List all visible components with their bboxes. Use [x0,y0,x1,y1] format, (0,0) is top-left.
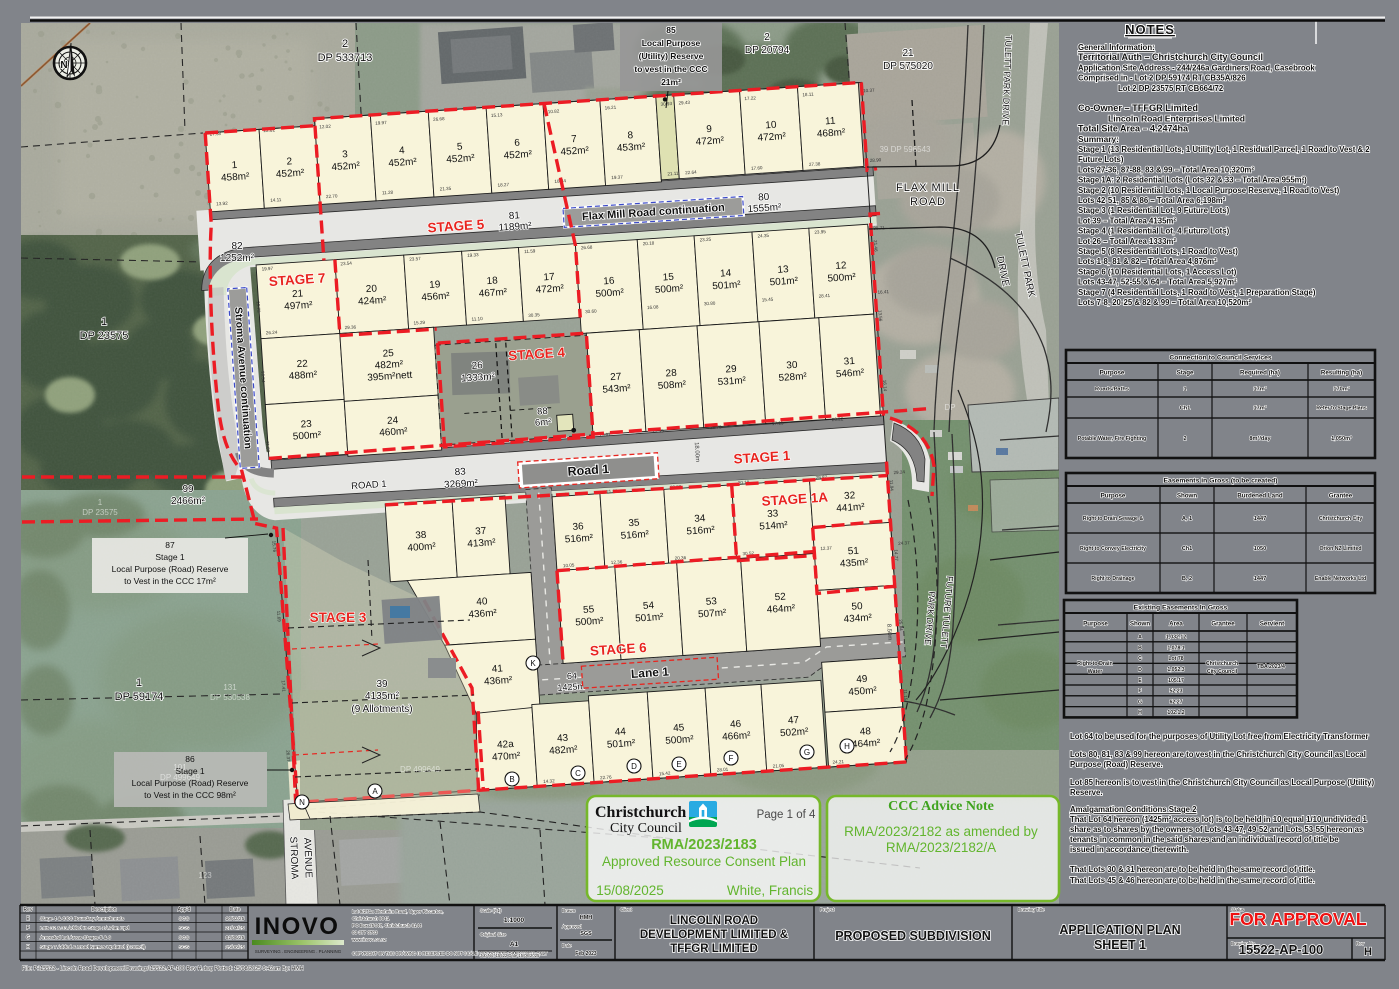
svg-text:22.64: 22.64 [685,169,697,175]
svg-text:81: 81 [508,210,520,222]
svg-text:8m³/day: 8m³/day [1249,435,1271,442]
svg-text:507m²: 507m² [698,607,728,620]
svg-text:Summary:: Summary: [1078,134,1119,144]
svg-text:10.05: 10.05 [563,562,575,568]
svg-text:H: H [844,742,850,751]
svg-text:STAGE 3: STAGE 3 [310,610,367,625]
svg-text:Lots 1-8, 81 & 82 – Total Area: Lots 1-8, 81 & 82 – Total Area 4,876m² [1078,257,1217,266]
svg-text:86: 86 [185,754,195,764]
svg-text:Feb 2023: Feb 2023 [575,951,597,957]
svg-text:Local Purpose: Local Purpose [642,38,701,48]
svg-text:22.76: 22.76 [600,774,612,780]
svg-text:www.inovo.co.nz: www.inovo.co.nz [352,937,387,942]
svg-text:Right to Drain Sewage &: Right to Drain Sewage & [1083,516,1143,522]
svg-text:434m²: 434m² [843,612,873,625]
svg-text:Total Site Area – 4.2474ha: Total Site Area – 4.2474ha [1078,124,1189,134]
svg-text:49: 49 [856,674,868,686]
svg-text:Ch1: Ch1 [1180,406,1191,412]
svg-text:11.10: 11.10 [471,316,483,322]
svg-text:AVENUE: AVENUE [301,838,313,879]
svg-text:to Vest in the CCC 17m²: to Vest in the CCC 17m² [124,576,216,586]
svg-text:29.43: 29.43 [678,100,690,106]
svg-text:441m²: 441m² [836,502,866,515]
svg-text:514m²: 514m² [759,520,789,533]
svg-text:53: 53 [705,596,717,608]
svg-text:Date: Date [230,907,241,913]
svg-text:531m²: 531m² [717,375,747,388]
svg-text:17.41: 17.41 [281,680,287,692]
svg-text:Enable Networks Ltd: Enable Networks Ltd [1315,576,1366,582]
svg-text:1: 1 [101,316,107,328]
svg-text:Scale (A1): Scale (A1) [480,908,502,913]
svg-text:21.35: 21.35 [440,186,452,192]
svg-text:Stage 1: Stage 1 [155,552,185,562]
svg-text:80: 80 [758,192,770,204]
svg-text:452m²: 452m² [331,160,361,173]
svg-text:24.37: 24.37 [898,540,910,546]
svg-text:RMA/2023/2182/A: RMA/2023/2182/A [886,840,996,855]
svg-text:450m²: 450m² [848,685,878,698]
svg-text:13.92: 13.92 [216,201,228,207]
svg-text:543m²: 543m² [602,383,632,396]
svg-text:23.25: 23.25 [699,237,711,243]
svg-text:2: 2 [1183,436,1186,442]
svg-text:PO Box 25447, Christchurch 814: PO Box 25447, Christchurch 8144 [352,923,422,928]
svg-text:11.28: 11.28 [382,190,394,196]
svg-text:54: 54 [643,600,655,612]
svg-text:City Council: City Council [610,821,682,836]
svg-text:17m³: 17m³ [1253,386,1266,393]
svg-text:131: 131 [223,683,237,692]
svg-text:Refer to Stage Plans: Refer to Stage Plans [1316,406,1367,412]
svg-text:Lots 42-51, 85 & 86 – Total Ar: Lots 42-51, 85 & 86 – Total Area 6,198m² [1078,196,1226,205]
svg-text:15: 15 [662,272,674,284]
svg-text:452m²: 452m² [276,167,306,180]
svg-text:H: H [1138,710,1142,716]
svg-text:17.60: 17.60 [751,165,763,171]
svg-text:23.95: 23.95 [814,229,826,235]
svg-text:Lots 43-47, 52-55 & 64 – Total: Lots 43-47, 52-55 & 64 – Total Area 5,92… [1078,278,1237,287]
svg-text:Roads/Paths: Roads/Paths [1095,387,1129,393]
svg-text:Territorial Auth – Christchurc: Territorial Auth – Christchurch City Cou… [1078,52,1263,62]
svg-text:2: 2 [764,32,770,43]
svg-text:INOVO: INOVO [255,913,340,940]
svg-text:H: H [26,945,30,951]
svg-text:16.21: 16.21 [605,105,617,111]
svg-text:12: 12 [835,260,847,272]
svg-text:501m²: 501m² [769,276,799,289]
svg-text:Co-Owner – TFFGR Limited: Co-Owner – TFFGR Limited [1078,103,1198,113]
svg-text:App'd: App'd [178,907,191,913]
svg-text:SGS: SGS [179,926,189,932]
svg-text:19.73: 19.73 [255,301,261,313]
svg-text:1,052.3: 1,052.3 [1167,667,1184,673]
svg-text:21.05: 21.05 [773,763,785,769]
svg-text:RMA/2023/2182 as amended by: RMA/2023/2182 as amended by [844,824,1038,839]
svg-text:Rev: Rev [24,907,33,913]
svg-text:17.22: 17.22 [744,95,756,101]
svg-text:F: F [26,926,29,932]
svg-text:31: 31 [843,356,855,368]
svg-text:City Council: City Council [1207,669,1238,675]
svg-text:Stage 1 (13 Residential Lots,: Stage 1 (13 Residential Lots, 1 Utility … [1078,145,1370,154]
svg-text:1555m²: 1555m² [747,202,782,215]
svg-text:Existing Easements In Gross: Existing Easements In Gross [1134,605,1228,612]
svg-text:36: 36 [572,521,584,533]
svg-text:435m²: 435m² [840,557,870,570]
svg-text:SGS: SGS [179,935,189,941]
svg-text:Required (ha): Required (ha) [1240,370,1280,377]
svg-text:52: 52 [774,592,786,604]
svg-text:ROAD: ROAD [910,196,946,208]
svg-text:10: 10 [765,120,777,132]
svg-text:15.13: 15.13 [491,112,503,118]
svg-text:500m²: 500m² [827,272,857,285]
svg-text:13: 13 [777,264,789,276]
svg-text:HMH: HMH [580,915,593,921]
svg-text:1447: 1447 [1254,576,1266,582]
svg-text:47: 47 [788,715,800,727]
svg-text:Lots 7-8, 20-25 & 82 & 99 – To: Lots 7-8, 20-25 & 82 & 99 – Total Area 1… [1078,298,1251,307]
svg-text:500m²: 500m² [595,287,625,300]
svg-text:Right to Drainage: Right to Drainage [1091,576,1134,582]
svg-text:Christchurch: Christchurch [1206,661,1238,667]
svg-text:20: 20 [366,283,378,295]
svg-text:Stage 4 & CCC Boundary Amendme: Stage 4 & CCC Boundary Amendments [40,916,125,922]
svg-text:37: 37 [475,526,487,538]
svg-text:55: 55 [583,604,595,616]
svg-text:File: P:\15522 - Lincoln Road: File: P:\15522 - Lincoln Road Developmen… [22,966,304,972]
svg-text:10.82: 10.82 [548,108,560,114]
svg-text:Water: Water [1088,669,1104,675]
svg-text:99: 99 [182,484,194,495]
svg-text:38: 38 [415,530,427,542]
svg-text:24: 24 [387,415,399,427]
svg-text:ROAD 1: ROAD 1 [351,479,387,492]
svg-text:11.07: 11.07 [265,441,271,453]
svg-text:436m²: 436m² [468,608,498,621]
svg-text:26: 26 [471,360,483,372]
svg-text:Orion NZ Limited: Orion NZ Limited [1319,546,1361,552]
svg-text:TBA 2023/4: TBA 2023/4 [1257,664,1285,670]
svg-text:501m²: 501m² [607,738,637,751]
svg-text:Stage 6 (10 Residential Lots,: Stage 6 (10 Residential Lots, 1 Access L… [1078,267,1237,276]
svg-text:That Lots 30 & 31 hereon are t: That Lots 30 & 31 hereon are to be held … [1070,865,1315,874]
svg-text:Lot 78: Lot 78 [1168,656,1183,662]
svg-text:464m²: 464m² [852,738,882,751]
svg-text:G: G [1138,699,1142,705]
svg-text:436m²: 436m² [484,675,514,688]
svg-text:28.01: 28.01 [717,767,729,773]
svg-text:1333m²: 1333m² [461,371,496,384]
svg-text:452m²: 452m² [388,157,418,170]
svg-text:123: 123 [198,871,212,880]
svg-text:14.32: 14.32 [543,778,555,784]
svg-text:19.97: 19.97 [261,266,273,272]
svg-text:466m²: 466m² [722,730,752,743]
svg-text:52.23: 52.23 [1170,689,1183,695]
svg-text:460m²: 460m² [379,426,409,439]
svg-text:85: 85 [666,25,676,35]
svg-text:14: 14 [720,268,732,280]
svg-text:D: D [1138,667,1142,673]
svg-text:1: 1 [1183,387,1186,393]
svg-text:516m²: 516m² [564,533,594,546]
svg-text:17: 17 [543,272,555,284]
svg-text:11.59: 11.59 [524,248,536,254]
svg-text:Lots 32 & 33 Added to Stage 1A: Lots 32 & 33 Added to Stage 1A Plan Upd [40,926,129,932]
svg-text:23.54: 23.54 [340,261,352,267]
svg-text:Client: Client [620,907,632,912]
svg-text:K: K [530,659,536,668]
svg-text:11: 11 [825,116,837,128]
svg-text:A: A [1138,635,1142,641]
svg-text:Shown: Shown [1177,493,1197,500]
svg-text:6m²: 6m² [535,417,552,429]
svg-text:Stage 7 Added & Road Names Upd: Stage 7 Added & Road Names Updated (Coun… [40,945,146,951]
svg-text:87: 87 [165,540,175,550]
svg-text:400m²: 400m² [407,541,437,554]
svg-text:Lot 2 DP 23575 RT CB664/72: Lot 2 DP 23575 RT CB664/72 [1118,84,1224,93]
svg-text:Drawn: Drawn [562,908,576,913]
svg-text:1189m²: 1189m² [498,221,532,234]
svg-text:SURVEYING . ENGINEERING . PLAN: SURVEYING . ENGINEERING . PLANNING [255,949,342,954]
svg-text:41: 41 [491,663,503,675]
svg-text:That Lots 45 & 46 hereon are t: That Lots 45 & 46 hereon are to be held … [1070,876,1315,885]
svg-text:Amended Lot Areas Stages 5 & 6: Amended Lot Areas Stages 5 & 6 [40,935,111,941]
svg-text:467m²: 467m² [478,287,508,300]
svg-text:468m²: 468m² [817,127,847,140]
svg-text:Approved Resource Consent Plan: Approved Resource Consent Plan [602,854,806,869]
svg-text:44: 44 [614,726,626,738]
svg-text:02/06/25: 02/06/25 [226,935,245,941]
svg-text:Page 1 of 4: Page 1 of 4 [757,809,816,821]
svg-text:1,050m³: 1,050m³ [1331,435,1352,442]
svg-text:TFFGR LIMITED: TFFGR LIMITED [670,943,758,955]
svg-text:546m²: 546m² [836,367,866,380]
svg-text:SGS: SGS [179,945,189,951]
svg-text:30.35: 30.35 [528,312,540,318]
svg-text:Local Purpose (Road) Reserve: Local Purpose (Road) Reserve [112,564,229,574]
svg-text:Lane 1: Lane 1 [631,664,670,681]
svg-text:16.41: 16.41 [877,289,889,295]
svg-text:452m²: 452m² [446,153,476,166]
svg-text:Comprised in - Lot 2 DP 591: Comprised in - Lot 2 DP 59174 RT CB35A/8… [1078,74,1246,83]
svg-text:tenants in common in the said: tenants in common in the said shares and… [1070,835,1339,844]
svg-text:170m³: 170m³ [1333,386,1349,393]
svg-text:Shown: Shown [1130,621,1150,628]
svg-text:24.35: 24.35 [757,233,769,239]
svg-text:RMA/2023/2183: RMA/2023/2183 [651,837,757,853]
svg-text:PROPOSED SUBDIVISION: PROPOSED SUBDIVISION [835,929,991,943]
svg-text:453m²: 453m² [617,141,647,154]
svg-text:DP: DP [944,403,955,412]
svg-text:DP 20794: DP 20794 [745,45,790,56]
svg-text:101: 101 [173,763,187,772]
svg-text:43: 43 [557,733,569,745]
svg-text:A: A [372,787,378,796]
svg-text:Lots 27-36, 87-88, 83 & 99 – T: Lots 27-36, 87-88, 83 & 99 – Total Area … [1078,165,1254,174]
svg-text:1,078.1: 1,078.1 [1167,645,1184,651]
svg-text:DP 23575: DP 23575 [82,508,118,517]
svg-text:516m²: 516m² [686,525,716,538]
svg-text:Description: Description [91,907,116,913]
svg-text:19: 19 [429,279,441,291]
svg-text:20.18: 20.18 [643,240,655,246]
svg-text:12.37: 12.37 [820,545,832,551]
svg-text:Purpose (Road) Reserve.: Purpose (Road) Reserve. [1070,760,1163,769]
svg-text:34: 34 [694,513,706,525]
svg-text:SGS: SGS [580,931,592,937]
svg-text:LINCOLN ROAD: LINCOLN ROAD [670,915,758,927]
svg-text:23: 23 [300,419,312,431]
svg-text:D: D [631,762,637,771]
svg-text:General Information:: General Information: [1078,43,1155,52]
svg-text:501m²: 501m² [635,612,665,625]
svg-text:470m²: 470m² [492,750,522,763]
svg-text:issued in accordance therewith: issued in accordance therewith. [1070,845,1188,854]
svg-text:500m²: 500m² [575,616,605,629]
svg-text:C: C [575,769,581,778]
svg-text:2: 2 [342,38,348,50]
svg-text:45: 45 [673,723,685,735]
svg-text:Lots 80, 81, 83 & 99 hereon ar: Lots 80, 81, 83 & 99 hereon are to vest … [1070,750,1366,759]
svg-text:458m²: 458m² [221,171,251,184]
svg-text:Future Lots): Future Lots) [1078,155,1124,164]
svg-text:88: 88 [537,406,548,418]
svg-text:11.69: 11.69 [276,610,282,622]
svg-text:Stage: Stage [1177,370,1194,377]
svg-text:SHEET 1: SHEET 1 [1094,938,1146,952]
svg-text:16.54: 16.54 [260,371,266,383]
svg-text:Reserve.: Reserve. [1070,788,1103,797]
svg-text:DP 499649: DP 499649 [400,765,440,774]
svg-text:18.27: 18.27 [497,182,509,188]
svg-text:21: 21 [292,288,304,300]
svg-text:B, 2: B, 2 [1182,576,1192,582]
svg-text:12.02: 12.02 [319,124,331,130]
svg-text:30.60: 30.60 [585,308,597,314]
svg-text:1:1000: 1:1000 [504,917,525,924]
svg-text:30: 30 [786,360,798,372]
svg-text:40: 40 [476,596,488,608]
svg-text:26.37: 26.37 [285,750,291,762]
svg-text:502m²: 502m² [780,726,810,739]
svg-text:26.68: 26.68 [433,116,445,122]
svg-text:26.24: 26.24 [266,330,278,336]
svg-text:528m²: 528m² [778,371,808,384]
svg-text:N: N [60,60,67,71]
svg-text:DP 575020: DP 575020 [883,61,933,72]
svg-text:472m²: 472m² [535,283,565,296]
svg-text:19.37: 19.37 [611,174,623,180]
svg-text:64: 64 [567,671,578,682]
svg-text:(Utility) Reserve: (Utility) Reserve [639,51,704,61]
svg-text:FOR APPROVAL: FOR APPROVAL [1229,909,1366,929]
svg-text:SGS: SGS [179,916,189,922]
svg-text:Grantee: Grantee [1211,621,1235,628]
svg-text:2466m²: 2466m² [171,496,206,507]
svg-text:Approved: Approved [562,924,582,929]
svg-text:1252m²: 1252m² [220,253,255,264]
svg-text:DP 23575: DP 23575 [80,330,129,342]
svg-text:500m²: 500m² [655,283,685,296]
svg-text:25: 25 [382,348,394,360]
svg-text:Stage 5 (8 Residential Lots, 1: Stage 5 (8 Residential Lots, 1 Road to V… [1078,247,1238,256]
svg-text:FLAX MILL: FLAX MILL [896,182,960,194]
svg-text:Purpose: Purpose [1101,493,1126,500]
svg-text:Drawing Title: Drawing Title [1018,907,1045,912]
svg-text:Lot 26 – Total Area 1333m²: Lot 26 – Total Area 1333m² [1078,237,1176,246]
svg-text:21m²: 21m² [661,77,681,87]
svg-text:DP 530538: DP 530538 [210,693,250,702]
svg-text:Stage 2 (10 Residential Lots,: Stage 2 (10 Residential Lots, 1 Local Pu… [1078,186,1340,195]
svg-text:Potable Water, Fire Fighting: Potable Water, Fire Fighting [1078,436,1146,442]
svg-text:Job No. 15522 Date 15/08/202: Job No. 15522 Date 15/08/2025 [480,953,540,958]
svg-text:19.97: 19.97 [375,120,387,126]
svg-text:Stage 1A: 2 Residential Lots (: Stage 1A: 2 Residential Lots (Lots 32 & … [1078,176,1307,185]
svg-text:Original Size: Original Size [480,932,506,937]
svg-text:27.38: 27.38 [809,161,821,167]
svg-text:Stage 7 (4 Residential Lots, 1: Stage 7 (4 Residential Lots, 1 Road to V… [1078,288,1316,297]
svg-text:16: 16 [603,276,615,288]
svg-text:452m²: 452m² [560,145,590,158]
svg-text:B: B [1138,645,1142,651]
svg-text:30.80: 30.80 [704,301,716,307]
svg-text:42a: 42a [497,739,515,751]
svg-text:STROMA: STROMA [287,836,299,879]
svg-text:21.11: 21.11 [667,171,679,177]
svg-text:4135m²: 4135m² [365,691,400,702]
svg-text:472m²: 472m² [757,131,787,144]
svg-text:Right to Drain: Right to Drain [1077,661,1113,667]
svg-text:500m²: 500m² [665,734,695,747]
svg-text:Stage 3 (1 Residential Lot, 9: Stage 3 (1 Residential Lot, 9 Future Lot… [1078,206,1230,215]
svg-text:15/08/25: 15/08/25 [226,945,245,951]
svg-text:39 DP 596543: 39 DP 596543 [879,145,931,154]
svg-text:33: 33 [767,508,779,520]
svg-text:1,032.12: 1,032.12 [1166,635,1186,641]
svg-text:15.42: 15.42 [659,771,671,777]
svg-text:E: E [676,760,681,769]
svg-text:Application Site Address - 244: Application Site Address - 244/246a Gard… [1078,63,1315,72]
svg-text:29.24: 29.24 [893,469,905,475]
svg-text:500m²: 500m² [293,430,323,443]
svg-text:G: G [804,748,810,757]
svg-text:488m²: 488m² [288,369,318,382]
svg-text:Lot 39 – Total Area 4135m²: Lot 39 – Total Area 4135m² [1078,216,1176,225]
svg-text:1: 1 [136,677,142,689]
svg-text:NOTES: NOTES [1125,22,1175,37]
svg-text:10.37: 10.37 [863,88,875,94]
svg-text:Resulting (ha): Resulting (ha) [1321,370,1362,377]
svg-text:Amalgamation Conditions Stage: Amalgamation Conditions Stage 2 [1070,805,1197,814]
svg-text:Lot 85 hereon is to vest in th: Lot 85 hereon is to vest in the Christch… [1070,778,1375,787]
svg-text:17m³: 17m³ [1253,405,1266,412]
svg-text:51: 51 [847,546,859,558]
svg-text:Road 1: Road 1 [567,462,610,479]
svg-text:452m²: 452m² [503,149,533,162]
svg-text:83: 83 [454,466,466,478]
svg-text:N: N [299,798,305,807]
svg-text:Servient: Servient [1260,621,1284,628]
svg-text:DP 533713: DP 533713 [318,52,373,64]
svg-text:Christchurch 8041: Christchurch 8041 [352,916,390,921]
svg-text:1447: 1447 [1254,516,1266,522]
svg-text:15.45: 15.45 [762,297,774,303]
svg-text:Christchurch City: Christchurch City [1319,516,1363,522]
svg-text:464m²: 464m² [767,603,797,616]
